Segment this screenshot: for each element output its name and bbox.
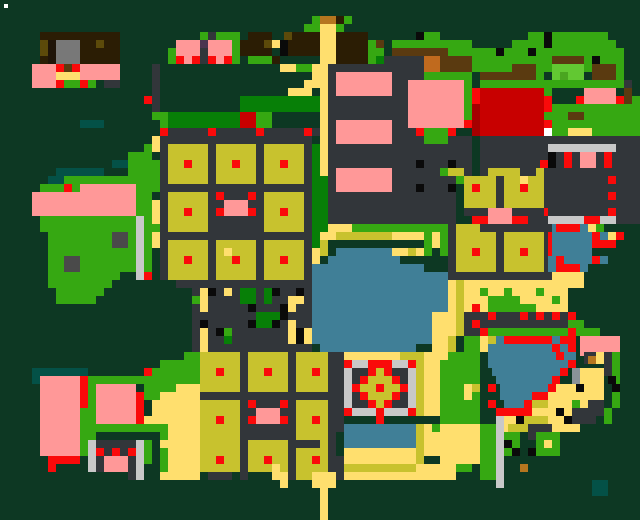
town-map [0,0,640,520]
pixel-map-canvas [0,0,640,520]
